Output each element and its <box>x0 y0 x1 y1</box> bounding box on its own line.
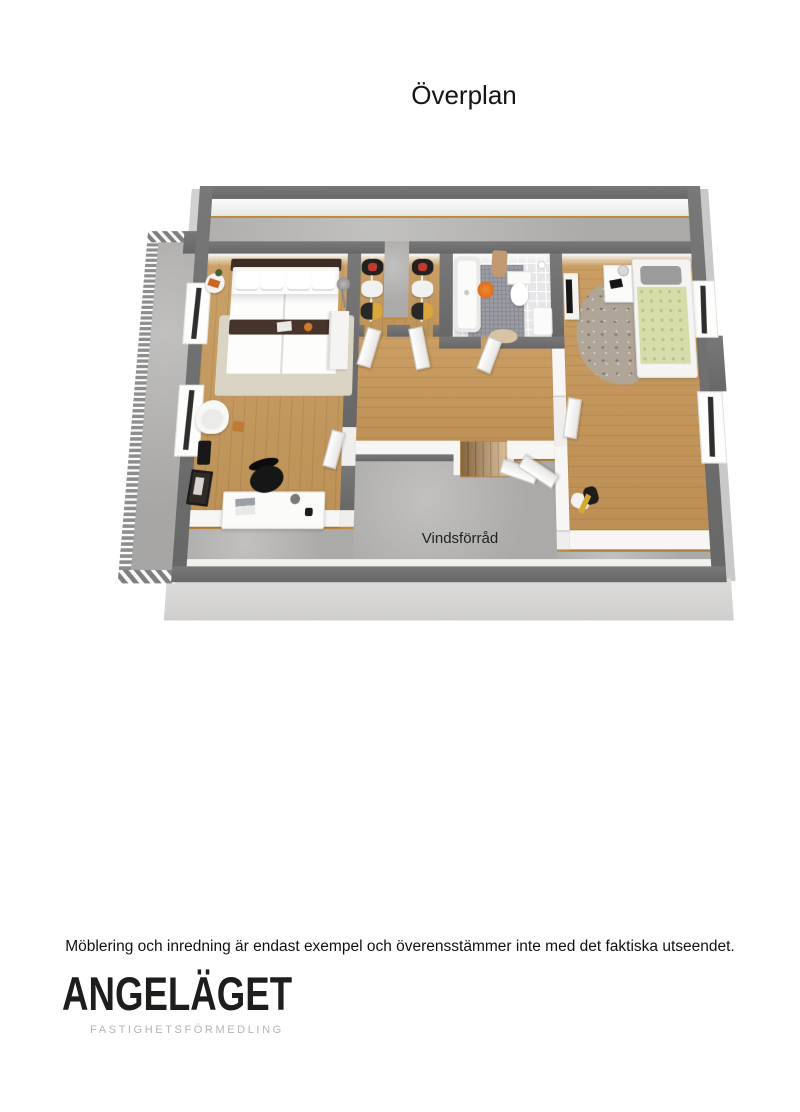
desk-items <box>305 508 313 516</box>
floor-plan <box>111 186 800 632</box>
hanging-clothes-icon <box>360 303 382 320</box>
single-bed-icon <box>631 259 698 378</box>
pillow <box>260 271 283 289</box>
clothes-pile-icon <box>571 484 611 519</box>
page-title: Överplan <box>64 80 800 111</box>
room-label-vindsforrad: Vindsförråd <box>390 530 530 547</box>
closet-bottom-wall-stub-2 <box>387 325 410 337</box>
brand-name: ANGELÄGET <box>62 970 292 1017</box>
pillow <box>236 271 260 289</box>
towel-icon <box>491 250 508 278</box>
toilet-bowl <box>510 283 528 306</box>
brand-logo: ANGELÄGET FASTIGHETSFÖRMEDLING <box>62 970 357 1036</box>
window-icon <box>182 283 211 345</box>
laptop-icon <box>235 498 255 516</box>
window-icon <box>697 391 727 463</box>
hanging-clothes-red <box>368 263 377 271</box>
terrace-railing-bottom-icon <box>118 570 177 583</box>
hall-storage-wall-right <box>507 441 555 459</box>
closet-bathroom-wall <box>439 254 453 337</box>
double-bed-icon <box>224 259 342 376</box>
side-stool-icon <box>232 420 246 432</box>
disclaimer-text: Möblering och inredning är endast exempe… <box>0 938 800 956</box>
outer-wall-top <box>199 186 701 199</box>
storage-divider-wall <box>208 241 691 253</box>
outer-wall-bottom <box>171 566 727 582</box>
bathtub-drain <box>464 290 469 295</box>
closet-concrete-column <box>383 241 409 319</box>
hanging-clothes-icon <box>412 281 434 298</box>
pillow <box>640 266 682 285</box>
hanging-clothes-icon <box>411 303 433 320</box>
bottom-wall-inner-face <box>187 559 712 566</box>
stool-icon <box>477 282 494 299</box>
tv-icon <box>566 279 573 313</box>
magazine <box>277 321 292 332</box>
duvet-green <box>637 287 691 364</box>
pillow <box>287 271 310 289</box>
brand-tagline: FASTIGHETSFÖRMEDLING <box>90 1024 357 1036</box>
pillow <box>312 271 335 289</box>
speaker-icon <box>197 441 212 465</box>
master-hall-wall-lower <box>340 466 355 510</box>
hall-storage-wall-cap <box>355 454 460 461</box>
right-wall-stub <box>706 336 727 392</box>
bedroom2-hall-wall-lower <box>554 446 569 530</box>
top-wall-inner-face <box>211 199 689 216</box>
closet-bottom-wall-stub-3 <box>433 325 439 337</box>
hanging-clothes-icon <box>361 281 383 298</box>
wall-side-face-bottom <box>164 579 734 621</box>
bathroom-bottom-wall-left <box>439 337 481 349</box>
sink-icon <box>532 307 552 336</box>
hanging-clothes-red <box>418 263 427 271</box>
toilet-paper-icon <box>538 261 546 269</box>
bedroom2-bottom-wall <box>570 530 711 549</box>
wardrobe-icon <box>328 311 350 369</box>
table-lamp-icon <box>617 265 629 276</box>
closet-bottom-wall-stub-1 <box>359 325 365 337</box>
